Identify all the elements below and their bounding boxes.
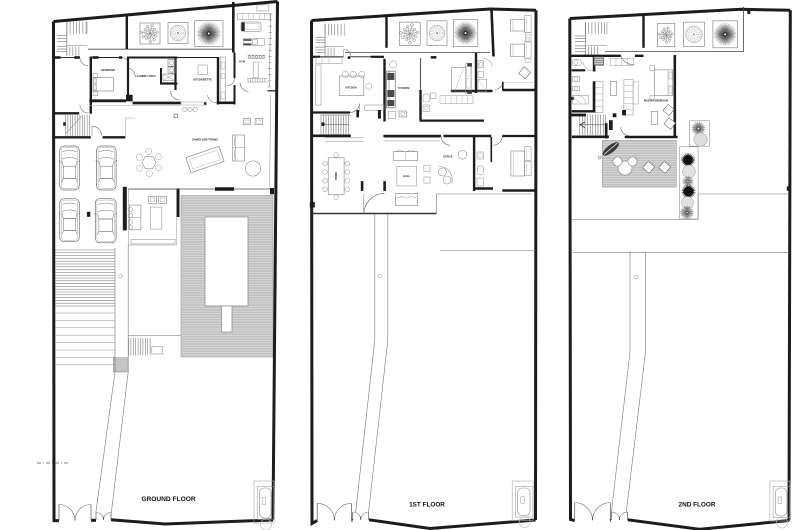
svg-text:KITCHEN: KITCHEN <box>345 86 356 89</box>
svg-text:MASTER BEDROOM: MASTER BEDROOM <box>644 100 668 103</box>
svg-text:LAUNDRY AREA: LAUNDRY AREA <box>135 74 156 78</box>
svg-text:2ND FLOOR: 2ND FLOOR <box>679 502 716 509</box>
svg-text:DINING: DINING <box>334 172 336 180</box>
svg-text:TV ROOM: TV ROOM <box>398 87 410 90</box>
svg-text:OFFICE: OFFICE <box>443 155 452 158</box>
svg-text:1ST FLOOR: 1ST FLOOR <box>409 502 445 509</box>
svg-text:KITCHENETTE: KITCHENETTE <box>193 78 211 82</box>
svg-text:GROUND FLOOR: GROUND FLOOR <box>141 496 195 503</box>
svg-text:HALL: HALL <box>403 175 410 178</box>
svg-text:GAMES AND TRAINS: GAMES AND TRAINS <box>192 138 218 142</box>
svg-text:BEDROOM: BEDROOM <box>101 68 115 72</box>
svg-text:GYM: GYM <box>239 59 245 63</box>
